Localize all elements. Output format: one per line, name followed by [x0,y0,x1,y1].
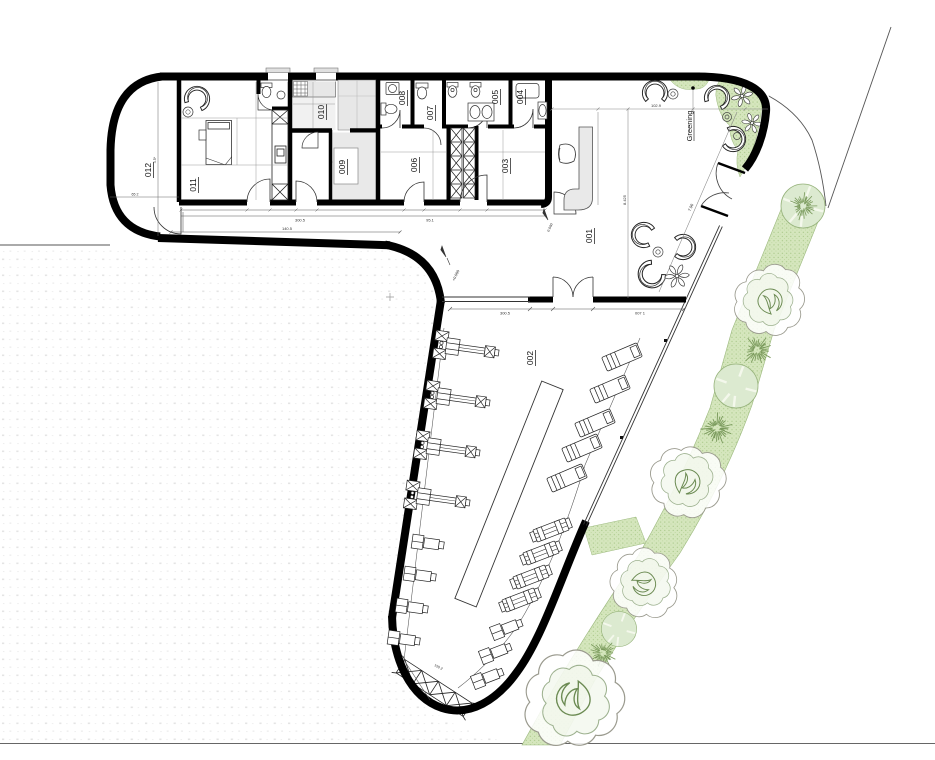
svg-text:300.5: 300.5 [500,311,511,316]
svg-text:012: 012 [143,163,153,177]
svg-text:Greening: Greening [685,111,694,142]
svg-text:4.5*: 4.5* [153,156,157,163]
svg-text:011: 011 [188,178,198,192]
svg-text:010: 010 [316,105,326,119]
svg-text:006: 006 [409,158,419,172]
svg-text:009: 009 [337,160,347,174]
svg-text:65 2: 65 2 [132,193,139,197]
svg-text:007 1: 007 1 [635,311,646,316]
svg-text:002: 002 [525,351,535,365]
svg-text:102.9: 102.9 [651,103,662,108]
svg-text:001: 001 [584,229,594,243]
svg-text:005: 005 [490,90,500,104]
svg-text:95.1: 95.1 [426,218,435,223]
svg-text:003: 003 [500,159,510,173]
svg-text:008: 008 [397,91,407,105]
svg-text:300.5: 300.5 [295,218,306,223]
svg-text:007: 007 [425,106,435,120]
svg-text:140.5: 140.5 [282,226,293,231]
svg-text:004: 004 [515,90,525,104]
svg-text:8.425: 8.425 [622,194,627,205]
